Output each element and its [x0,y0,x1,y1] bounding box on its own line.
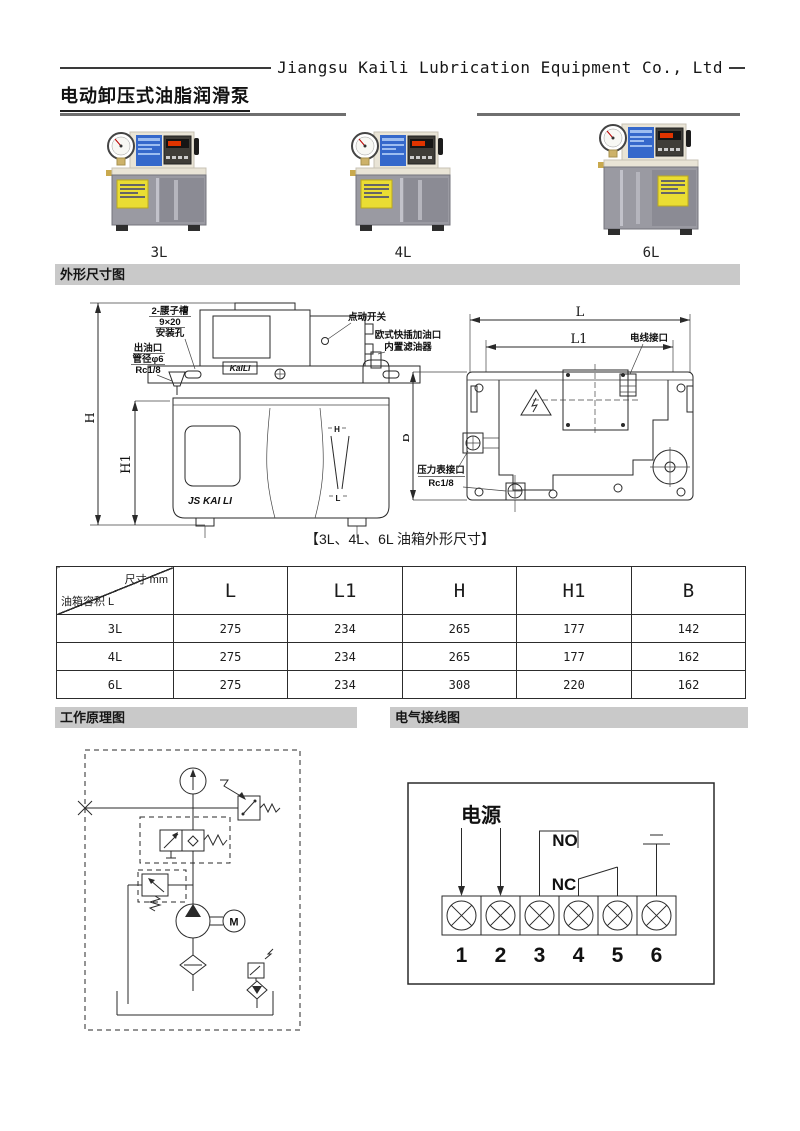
table-row: 6L 275 234 308 220 162 [57,671,746,699]
cell: 142 [632,615,746,643]
terminal-numbers: 1 2 3 4 5 6 [456,944,663,967]
cell: 275 [174,671,288,699]
terminal-3: 3 [534,944,546,967]
no-label: NO [552,831,578,850]
cell: 265 [403,643,517,671]
terminal-5: 5 [612,944,624,967]
front-view-drawing: H H1 KaiLi [85,296,445,542]
level-high-mark: H [334,425,340,434]
cell: 275 [174,615,288,643]
dimensions-table: 尺寸 mm 油箱容积 L L L1 H H1 B 3L 275 234 265 … [56,566,746,699]
dim-label-h1: H1 [119,454,134,474]
product-label-6l: 6L [592,245,710,261]
red-display [168,141,181,146]
corner-label-size: 尺寸 mm [125,571,168,587]
label-oil-outlet-1: 出油口 [134,342,163,354]
tank-brand: JS KAI LI [188,496,232,507]
knob [194,138,199,155]
nc-label: NC [552,875,577,894]
terminal-6: 6 [651,944,663,967]
terminal-1: 1 [456,944,468,967]
label-jog-switch: 点动开关 [348,311,387,323]
col-header-b: B [632,567,746,615]
cell: 234 [288,671,403,699]
cell: 265 [403,615,517,643]
header-rule-right [729,67,745,69]
relief-valve-symbol [142,874,168,896]
dim-label-l: L [576,305,585,320]
wiring-diagram: 电源 NO NC 1 2 3 [407,782,716,986]
section-working-principle: 工作原理图 [55,707,357,728]
col-header-l: L [174,567,288,615]
row-label: 3L [57,615,174,643]
label-gauge-port-1: 压力表接口 [417,464,465,476]
label-oil-outlet-3: Rc1/8 [135,365,160,376]
cell: 234 [288,643,403,671]
brand-plate: KaiLi [230,363,251,373]
cell: 275 [174,643,288,671]
motor-label: M [229,917,238,929]
cell: 162 [632,671,746,699]
level-switch-symbol [248,963,264,978]
ground-symbol [643,835,670,896]
company-header: Jiangsu Kaili Lubrication Equipment Co.,… [60,58,745,77]
table-corner-cell: 尺寸 mm 油箱容积 L [57,567,174,615]
title-rule-right [477,113,740,116]
cell: 308 [403,671,517,699]
company-name: Jiangsu Kaili Lubrication Equipment Co.,… [277,58,723,77]
table-row: 4L 275 234 265 177 162 [57,643,746,671]
power-label: 电源 [461,804,501,827]
terminal-block [442,896,676,935]
row-label: 4L [57,643,174,671]
product-photo-3l [100,126,218,238]
label-mounting-slot-2: 9×20 [159,317,180,328]
cell: 162 [632,643,746,671]
product-photo-4l [344,126,462,238]
dim-label-b: B [403,433,413,443]
principle-diagram: M [60,738,322,1038]
tank-symbol [117,991,273,1015]
dim-label-l1: L1 [571,332,588,347]
section-outline-dimensions: 外形尺寸图 [55,264,740,285]
label-oil-outlet-2: 管径φ6 [132,353,163,365]
dim-label-h: H [85,412,98,423]
page-title: 电动卸压式油脂润滑泵 [60,82,250,112]
product-label-4l: 4L [344,245,462,261]
cell: 177 [517,615,632,643]
corner-label-volume: 油箱容积 L [61,593,114,609]
cell: 177 [517,643,632,671]
col-header-h1: H1 [517,567,632,615]
section-electrical-wiring: 电气接线图 [390,707,748,728]
col-header-l1: L1 [288,567,403,615]
header-rule-left [60,67,271,69]
terminal-4: 4 [573,944,585,967]
label-gauge-port-2: Rc1/8 [428,478,453,489]
datasheet-page: Jiangsu Kaili Lubrication Equipment Co.,… [0,0,800,1131]
cell: 220 [517,671,632,699]
terminal-2: 2 [495,944,507,967]
dimensions-table-wrap: 尺寸 mm 油箱容积 L L L1 H H1 B 3L 275 234 265 … [56,566,746,699]
cell: 234 [288,615,403,643]
label-mounting-slot-3: 安装孔 [156,327,185,339]
drawing-caption: 【3L、4L、6L 油箱外形尺寸】 [55,529,745,549]
label-wire-port: 电线接口 [630,332,668,344]
level-low-mark: L [336,494,341,503]
label-mounting-slot-1: 2-腰子槽 [152,305,189,317]
col-header-h: H [403,567,517,615]
row-label: 6L [57,671,174,699]
product-photo-6l [592,118,710,240]
top-view-drawing: L L1 B [403,300,757,535]
table-row: 3L 275 234 265 177 142 [57,615,746,643]
title-rule-left [60,113,346,116]
product-label-3l: 3L [100,245,218,261]
